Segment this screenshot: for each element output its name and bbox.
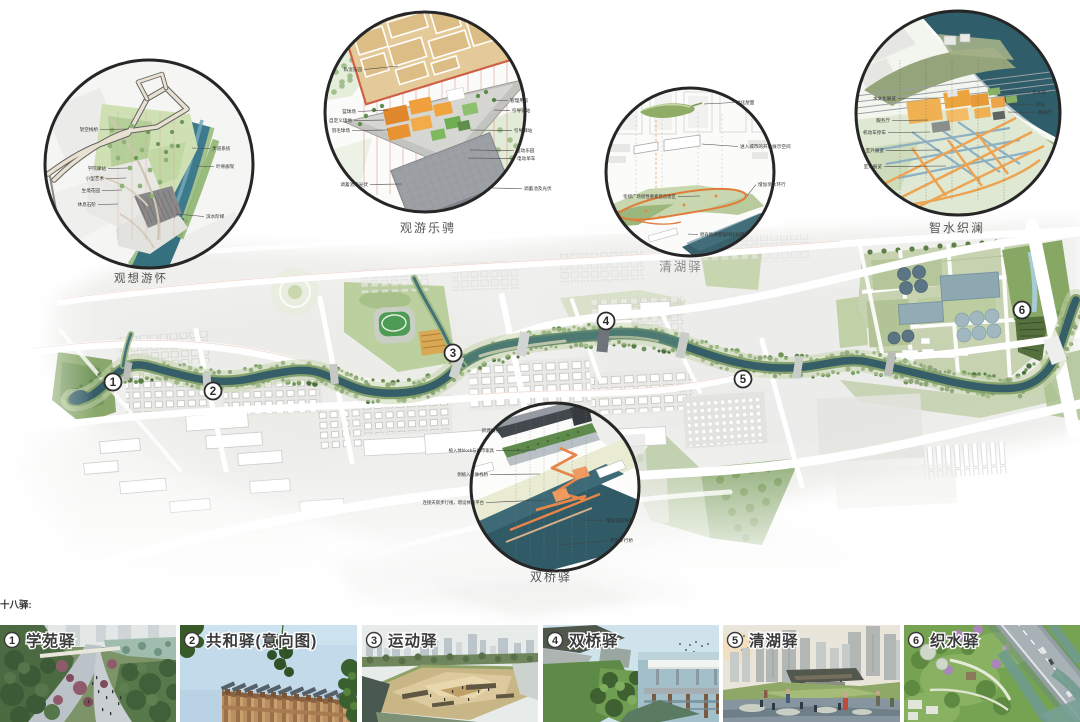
svg-text:电动单车: 电动单车 xyxy=(517,155,536,162)
svg-text:步道系统: 步道系统 xyxy=(212,145,231,152)
svg-text:5: 5 xyxy=(732,635,738,647)
svg-text:十八驿:: 十八驿: xyxy=(0,599,32,611)
svg-text:室外展览: 室外展览 xyxy=(866,147,885,154)
svg-text:清湖驿: 清湖驿 xyxy=(749,632,799,650)
svg-text:6: 6 xyxy=(1019,305,1025,317)
svg-text:滨水阶梯: 滨水阶梯 xyxy=(206,213,225,220)
svg-text:共和驿(意向图): 共和驿(意向图) xyxy=(206,631,317,650)
svg-text:码头: 码头 xyxy=(1036,101,1046,108)
svg-text:羽毛球场: 羽毛球场 xyxy=(332,127,351,134)
svg-text:1: 1 xyxy=(9,635,15,647)
svg-text:私宠乐园: 私宠乐园 xyxy=(344,66,363,73)
svg-text:衔接广场韧性要素营造街区: 衔接广场韧性要素营造街区 xyxy=(623,193,676,200)
svg-text:原有防洪堤墙绿化处理: 原有防洪堤墙绿化处理 xyxy=(700,231,745,238)
svg-text:架空栈桥: 架空栈桥 xyxy=(80,126,99,133)
svg-text:生境花园: 生境花园 xyxy=(82,187,101,194)
svg-text:清湖驿: 清湖驿 xyxy=(659,259,703,274)
svg-text:篮球场: 篮球场 xyxy=(342,108,356,115)
svg-text:植入体block与城市家具: 植入体block与城市家具 xyxy=(449,447,495,454)
svg-text:连接天际步行线，增设休闲平台: 连接天际步行线，增设休闲平台 xyxy=(423,499,485,506)
svg-text:2: 2 xyxy=(189,635,195,647)
svg-text:叶脊廊架: 叶脊廊架 xyxy=(216,163,235,170)
svg-text:5: 5 xyxy=(740,374,747,386)
svg-text:休息石阶: 休息石阶 xyxy=(78,201,97,208)
svg-text:2: 2 xyxy=(210,386,216,398)
svg-text:水文化展览: 水文化展览 xyxy=(873,95,896,102)
svg-text:双桥驿: 双桥驿 xyxy=(530,570,572,584)
svg-text:服务厅: 服务厅 xyxy=(876,117,890,124)
svg-text:4: 4 xyxy=(603,316,610,328)
svg-text:咖啡厅: 咖啡厅 xyxy=(1038,109,1052,116)
svg-text:3: 3 xyxy=(371,635,377,647)
svg-text:调蓄池及光伏: 调蓄池及光伏 xyxy=(524,185,552,192)
svg-text:引导驿站: 引导驿站 xyxy=(512,107,531,114)
svg-text:智水织澜: 智水织澜 xyxy=(929,220,985,235)
svg-text:3: 3 xyxy=(450,348,456,360)
svg-text:4: 4 xyxy=(552,635,559,647)
svg-text:机动车停车: 机动车停车 xyxy=(863,129,886,136)
svg-text:织水驿: 织水驿 xyxy=(930,631,980,650)
svg-text:学苑驿: 学苑驿 xyxy=(26,631,76,650)
svg-text:学院驿站: 学院驿站 xyxy=(88,165,107,172)
svg-text:自定义场地: 自定义场地 xyxy=(329,117,352,124)
svg-text:观游乐骋: 观游乐骋 xyxy=(400,221,456,235)
svg-text:运动驿: 运动驿 xyxy=(388,632,438,650)
svg-text:6: 6 xyxy=(913,635,919,647)
svg-text:双桥驿: 双桥驿 xyxy=(569,631,619,650)
svg-text:观想游怀: 观想游怀 xyxy=(114,271,168,285)
svg-text:进入城市的开放展示空间: 进入城市的开放展示空间 xyxy=(740,143,791,150)
svg-text:1: 1 xyxy=(110,377,117,389)
svg-text:亲水岸: 亲水岸 xyxy=(1032,89,1046,96)
svg-text:小型艺术: 小型艺术 xyxy=(86,175,105,182)
